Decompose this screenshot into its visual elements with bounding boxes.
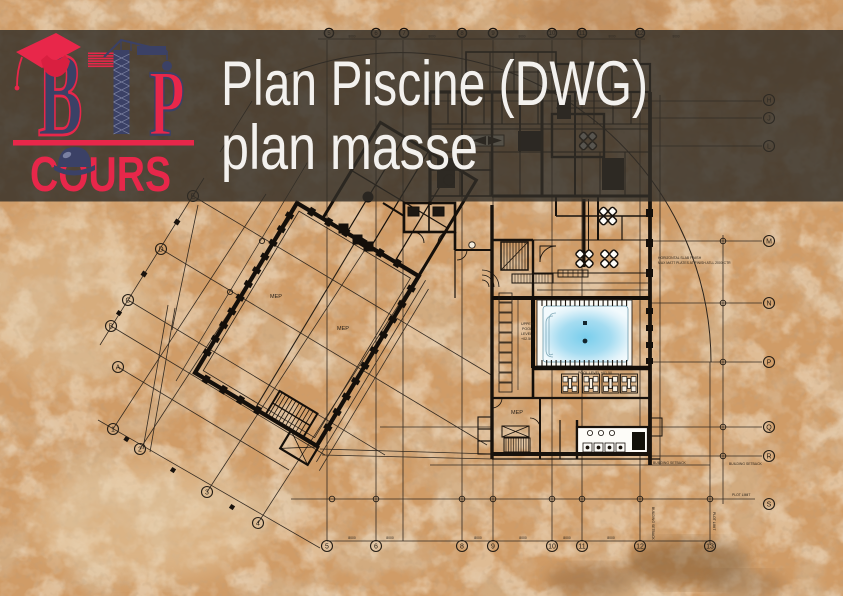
svg-text:LEVEL: LEVEL (521, 332, 532, 336)
svg-text:M: M (766, 239, 772, 246)
svg-text:1: 1 (111, 427, 115, 434)
svg-text:Plan Piscine (DWG): Plan Piscine (DWG) (221, 49, 648, 119)
svg-text:PLOT LIMIT: PLOT LIMIT (712, 512, 716, 530)
svg-text:MEP: MEP (337, 326, 349, 332)
svg-text:BUILDING SETBACK: BUILDING SETBACK (729, 462, 763, 466)
svg-text:B: B (109, 324, 114, 331)
svg-text:8000: 8000 (607, 536, 615, 540)
svg-text:3: 3 (205, 490, 209, 497)
svg-text:BUILDING SETBACK: BUILDING SETBACK (653, 461, 687, 465)
svg-text:8000: 8000 (474, 536, 482, 540)
svg-text:2: 2 (138, 447, 142, 454)
svg-text:MEP: MEP (270, 294, 282, 300)
svg-text:C: C (125, 298, 130, 305)
svg-text:13: 13 (706, 544, 714, 551)
svg-text:9: 9 (491, 544, 495, 551)
svg-text:5: 5 (325, 544, 329, 551)
svg-text:Q: Q (766, 425, 772, 432)
svg-text:PLOT LIMIT: PLOT LIMIT (732, 493, 750, 497)
svg-text:8000: 8000 (563, 536, 571, 540)
svg-text:UPPER: UPPER (521, 322, 534, 326)
svg-text:8000: 8000 (386, 536, 394, 540)
svg-text:POOL: POOL (522, 327, 532, 331)
svg-text:MEP: MEP (511, 410, 523, 416)
svg-text:A: A (116, 365, 121, 372)
svg-text:HORIZONTAL SLAB FINISH: HORIZONTAL SLAB FINISH (658, 256, 702, 260)
svg-text:BUILDING SETBACK: BUILDING SETBACK (651, 507, 655, 541)
svg-text:P: P (767, 360, 772, 367)
svg-text:6: 6 (374, 544, 378, 551)
svg-text:8: 8 (460, 544, 464, 551)
svg-text:S: S (767, 502, 772, 509)
svg-text:P: P (149, 51, 185, 156)
svg-text:N: N (766, 301, 771, 308)
svg-text:COURS: COURS (30, 148, 171, 202)
svg-text:R: R (766, 454, 771, 461)
svg-text:8000: 8000 (519, 536, 527, 540)
svg-text:MAX MATT PLATES AT FINISH ATLL: MAX MATT PLATES AT FINISH ATLL 2000 CTR (658, 261, 731, 265)
svg-text:D: D (158, 247, 163, 254)
svg-text:plan masse: plan masse (221, 113, 478, 183)
svg-text:11: 11 (578, 544, 585, 551)
svg-text:4: 4 (256, 521, 260, 528)
svg-text:+02.50: +02.50 (521, 337, 532, 341)
svg-text:12: 12 (636, 544, 644, 551)
svg-text:8000: 8000 (348, 536, 356, 540)
svg-text:10: 10 (548, 544, 556, 551)
